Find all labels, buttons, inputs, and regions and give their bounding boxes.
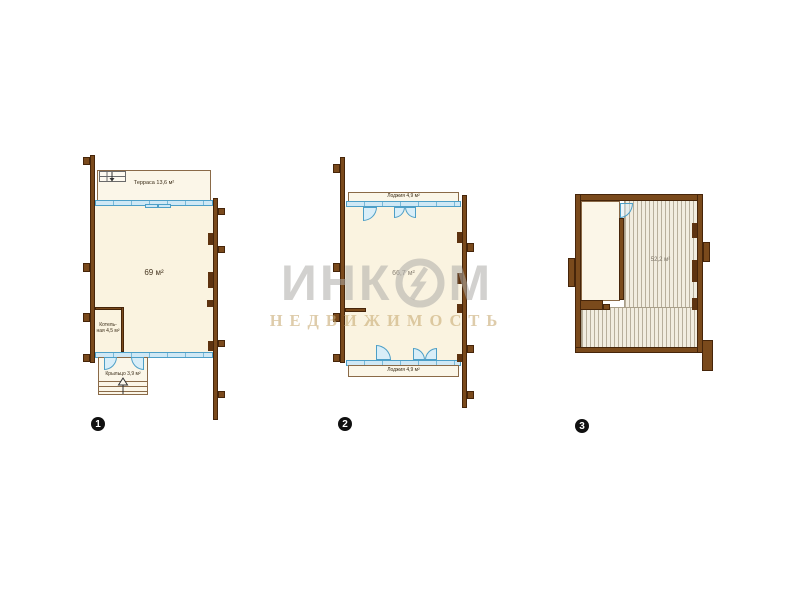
wall: [575, 347, 703, 353]
wall: [208, 233, 213, 245]
wall: [575, 194, 581, 353]
wall: [95, 307, 124, 310]
main-area-label-3: 52,2 м²: [624, 257, 697, 264]
wall: [90, 155, 95, 363]
plan-number-badge: 1: [91, 417, 105, 431]
wall: [83, 354, 90, 362]
main-area-label-2: 66,7 м²: [345, 270, 462, 278]
main-room-2: [345, 206, 462, 360]
up-arrow-icon: [116, 377, 130, 395]
wall: [603, 304, 610, 310]
wall: [692, 260, 697, 282]
wall: [83, 157, 90, 165]
floorplan-sheet: Терраса 13,6 м² 69 м² Котель- ная 4,5 м²…: [0, 0, 800, 600]
main-area-label-1: 69 м²: [95, 268, 213, 277]
wall: [345, 308, 366, 312]
wall: [213, 198, 218, 420]
wall: [457, 354, 462, 362]
attic-floor-lower: [581, 307, 698, 348]
wall: [208, 272, 213, 288]
wall: [457, 273, 462, 284]
wall: [218, 340, 225, 347]
wall: [619, 218, 624, 300]
wall: [703, 242, 710, 262]
wall: [467, 345, 474, 353]
wall: [702, 340, 713, 371]
wall: [457, 304, 462, 313]
sliding-door-panel: [158, 204, 171, 208]
wall: [575, 194, 703, 201]
wall: [207, 300, 213, 307]
plan-number-badge: 2: [338, 417, 352, 431]
wall: [333, 354, 340, 362]
wall: [467, 243, 474, 252]
wall: [697, 194, 703, 353]
plan-number-badge: 3: [575, 419, 589, 433]
wall: [333, 263, 340, 272]
wall: [457, 232, 462, 243]
wall: [692, 223, 697, 238]
wall: [218, 391, 225, 398]
wall: [218, 208, 225, 215]
wall: [692, 298, 697, 310]
wall: [333, 313, 340, 322]
wall: [83, 263, 90, 272]
wall: [208, 341, 213, 351]
wall: [467, 391, 474, 399]
wall: [462, 195, 467, 408]
loggia-bottom-label: Лоджия 4,9 м²: [348, 368, 459, 374]
wall: [333, 164, 340, 173]
boiler-room-label: Котель- ная 4,5 м²: [94, 323, 122, 335]
wall: [83, 313, 90, 322]
loggia-top-label: Лоджия 4,9 м²: [348, 194, 459, 200]
wall: [340, 157, 345, 363]
attic-room: [581, 201, 620, 301]
wall: [218, 246, 225, 253]
attic-floor-main: [624, 200, 698, 308]
wall: [568, 258, 575, 287]
terrace-label: Терраса 13,6 м²: [97, 180, 211, 186]
sliding-door-panel: [145, 204, 158, 208]
